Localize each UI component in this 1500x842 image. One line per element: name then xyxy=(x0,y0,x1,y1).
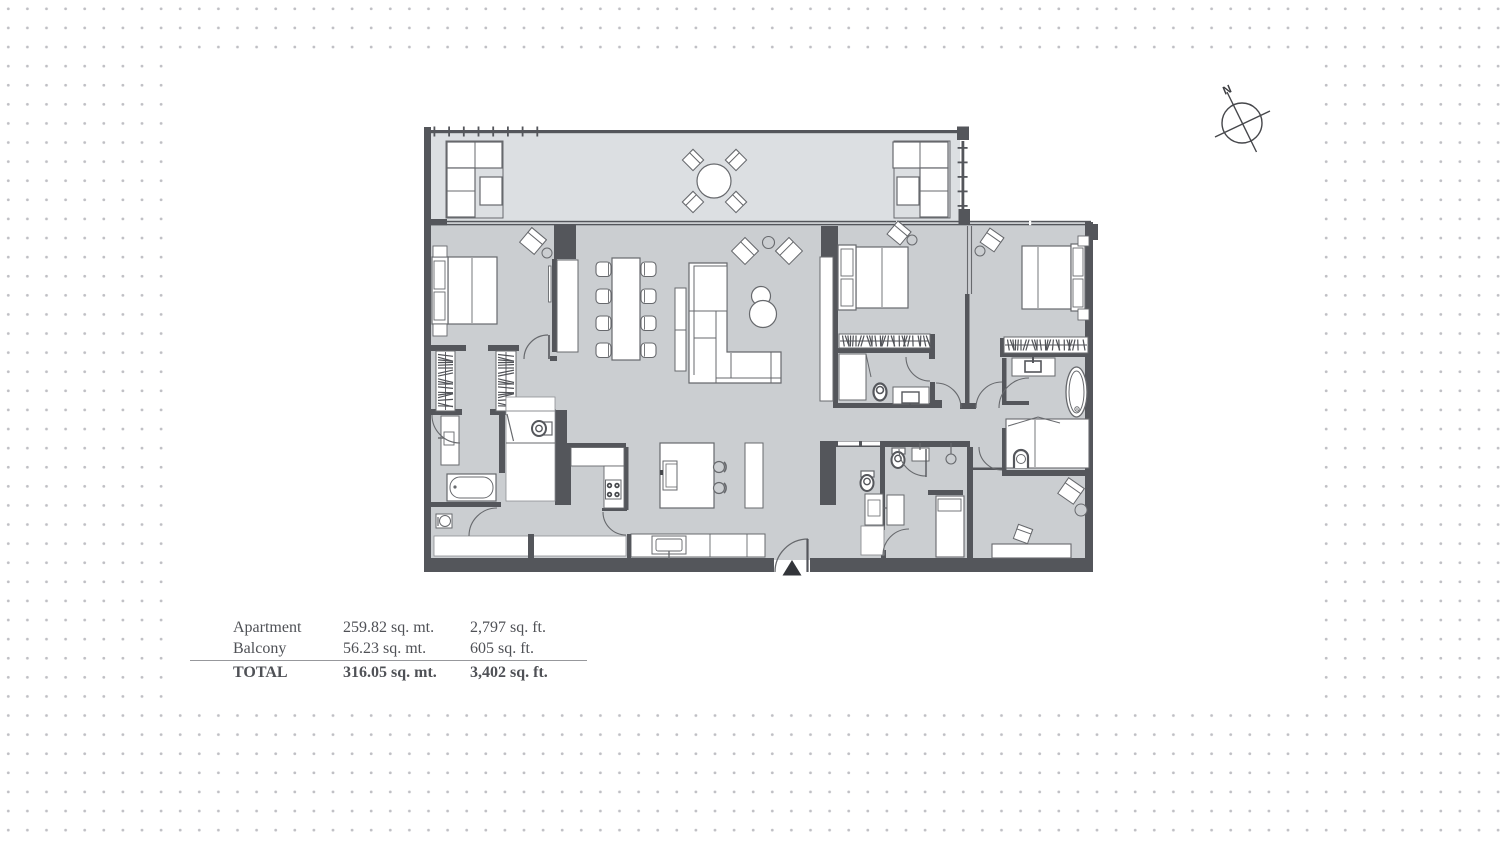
svg-text:316.05 sq. mt.: 316.05 sq. mt. xyxy=(343,664,437,681)
svg-text:Apartment: Apartment xyxy=(233,619,302,636)
svg-text:605 sq. ft.: 605 sq. ft. xyxy=(470,640,534,657)
svg-text:56.23 sq. mt.: 56.23 sq. mt. xyxy=(343,640,426,657)
svg-text:TOTAL: TOTAL xyxy=(233,664,288,681)
svg-text:2,797 sq. ft.: 2,797 sq. ft. xyxy=(470,619,546,636)
svg-text:Balcony: Balcony xyxy=(233,640,286,657)
svg-text:259.82 sq. mt.: 259.82 sq. mt. xyxy=(343,619,434,636)
svg-text:3,402 sq. ft.: 3,402 sq. ft. xyxy=(470,664,548,681)
